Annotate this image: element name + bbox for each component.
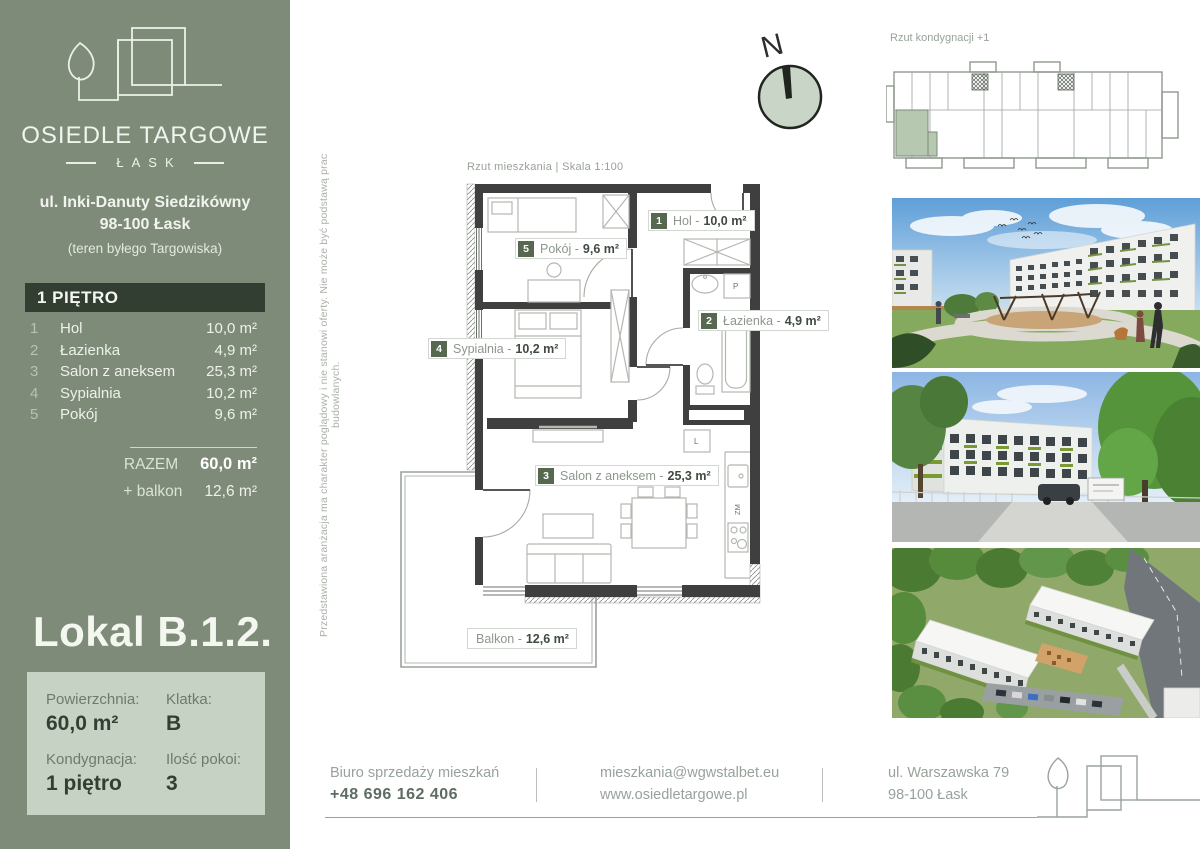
label-balkon: Balkon -12,6 m² [467,628,577,649]
room-label-text: Hol - [673,214,699,228]
room-name: Salon z aneksem [60,361,206,383]
info-staircase-label: Klatka: [166,691,265,708]
room-label-text: Salon z aneksem - [560,469,664,483]
room-no: 5 [30,404,60,426]
kitchen-sink [728,465,748,487]
footer-address-line2: 98-100 Łask [888,784,1009,806]
info-area-value: 60,0 m² [46,712,166,736]
neighbor-building [1164,688,1200,718]
label-salon: 3 Salon z aneksem -25,3 m² [535,465,719,486]
photo-courtyard-render [892,198,1200,368]
room-name: Hol [60,318,206,340]
room-label-area: 12,6 m² [526,632,569,646]
dining-table [632,498,686,548]
footer-address: ul. Warszawska 79 98-100 Łask [888,762,1009,806]
entrance-sign [1088,478,1124,500]
floor-header: 1 PIĘTRO [25,283,265,312]
chair [665,487,680,497]
room-label-area: 10,2 m² [515,342,558,356]
info-area-label: Powierzchnia: [46,691,166,708]
room-number-badge: 5 [518,241,534,257]
label-hol: 1 Hol -10,0 m² [648,210,755,231]
info-area: Powierzchnia: 60,0 m² [46,691,166,736]
footer-separator [822,768,823,802]
staircase-core [972,74,988,90]
room-label-text: Sypialnia - [453,342,511,356]
chair [638,487,653,497]
sofa [527,544,611,583]
chair [687,524,697,538]
overview-title: Rzut kondygnacji +1 [890,32,989,44]
total-divider [130,447,257,448]
room-no: 2 [30,340,60,362]
insulation-bottom [525,597,760,603]
room-table: 1 Hol 10,0 m² 2 Łazienka 4,9 m² 3 Salon … [30,318,257,426]
footer-phone: +48 696 162 406 [330,784,499,806]
coffee-table [543,514,593,538]
room-no: 4 [30,383,60,405]
info-floor: Kondygnacja: 1 piętro [46,751,166,796]
room-label-area: 4,9 m² [785,314,821,328]
tv-stand [533,430,603,442]
dash-left [66,162,96,164]
info-staircase-value: B [166,712,265,736]
room-label-text: Pokój - [540,242,579,256]
shaft [689,410,744,420]
unit-title: Lokal B.1.2. [33,608,272,656]
desk [528,280,580,302]
room-number-badge: 4 [431,341,447,357]
room-area: 10,2 m² [206,383,257,405]
balcony-label: + balkon [123,483,182,501]
room-area: 9,6 m² [214,404,257,426]
room-number-badge: 1 [651,213,667,229]
room-name: Łazienka [60,340,214,362]
label-pokoj: 5 Pokój -9,6 m² [515,238,627,259]
compass-icon: N [752,22,828,134]
chair [621,524,631,538]
room-number-badge: 3 [538,468,554,484]
toilet [697,364,713,384]
room-area: 4,9 m² [214,340,257,362]
info-staircase: Klatka: B [166,691,265,736]
chair [621,504,631,518]
photo-street-render [892,372,1200,542]
total-value: 60,0 m² [200,455,257,474]
room-no: 1 [30,318,60,340]
insulation-left [467,184,475,470]
brand-subtitle-row: ŁASK [0,155,290,170]
room-name: Sypialnia [60,383,206,405]
sink-unit-label: ZM [733,504,742,515]
info-rooms-label: Ilość pokoi: [166,751,265,768]
address-line1: ul. Inki-Danuty Siedzikówny [0,192,290,214]
photo-aerial-render [892,548,1200,718]
pillow [519,313,546,329]
table-row: 5 Pokój 9,6 m² [30,404,257,426]
logo-leaf [69,43,94,80]
info-rooms-value: 3 [166,772,265,796]
address-line3: (teren byłego Targowiska) [0,238,290,260]
highlighted-unit [896,110,928,156]
room-name: Pokój [60,404,214,426]
table-row: 1 Hol 10,0 m² [30,318,257,340]
total-row: RAZEM 60,0 m² [30,455,257,474]
fridge-label: L [694,437,699,446]
footer-contact: mieszkania@wgwstalbet.eu www.osiedletarg… [600,762,779,806]
table-row: 3 Salon z aneksem 25,3 m² [30,361,257,383]
room-no: 3 [30,361,60,383]
brand-subtitle: ŁASK [108,155,181,170]
room-label-area: 25,3 m² [668,469,711,483]
info-floor-value: 1 piętro [46,772,166,796]
footer-address-line1: ul. Warszawska 79 [888,762,1009,784]
room-number-badge: 2 [701,313,717,329]
info-floor-label: Kondygnacja: [46,751,166,768]
address-line2: 98-100 Łask [0,214,290,236]
logo-leaf [1048,758,1068,788]
dash-right [194,162,224,164]
table-row: 2 Łazienka 4,9 m² [30,340,257,362]
label-sypialnia: 4 Sypialnia -10,2 m² [428,338,566,359]
footer-logo-icon [1032,746,1200,820]
total-label: RAZEM [124,456,178,474]
footer-separator [536,768,537,802]
balcony-value: 12,6 m² [204,483,257,501]
footer-office: Biuro sprzedaży mieszkań +48 696 162 406 [330,762,499,806]
footer-website: www.osiedletargowe.pl [600,784,779,806]
label-lazienka: 2 Łazienka -4,9 m² [698,310,829,331]
compass-n: N [758,28,787,65]
staircase-core [1058,74,1074,90]
pillow [550,313,577,329]
room-area: 25,3 m² [206,361,257,383]
sidebar: OSIEDLE TARGOWE ŁASK ul. Inki-Danuty Sie… [0,0,290,849]
plan-disclaimer: Przedstawiona aranżacja ma charakter pog… [318,135,333,655]
building-overview-plan [886,52,1186,180]
room-label-area: 10,0 m² [703,214,746,228]
footer-divider-line [325,817,1037,818]
room-area: 10,0 m² [206,318,257,340]
room-label-text: Balkon - [476,632,522,646]
unit-info-box: Powierzchnia: 60,0 m² Klatka: B Kondygna… [27,672,265,815]
footer-office-label: Biuro sprzedaży mieszkań [330,762,499,784]
washer-label: P [733,282,738,291]
chair [687,504,697,518]
brand-logo-icon [55,15,245,125]
footer-email: mieszkania@wgwstalbet.eu [600,762,779,784]
project-address: ul. Inki-Danuty Siedzikówny 98-100 Łask … [0,192,290,260]
table-row: 4 Sypialnia 10,2 m² [30,383,257,405]
chair [547,263,561,277]
balcony-row: + balkon 12,6 m² [30,483,257,501]
room-label-text: Łazienka - [723,314,781,328]
brochure-page: OSIEDLE TARGOWE ŁASK ul. Inki-Danuty Sie… [0,0,1200,849]
pillow [492,202,512,214]
info-rooms: Ilość pokoi: 3 [166,751,265,796]
brand-name: OSIEDLE TARGOWE [0,122,290,150]
room-label-area: 9,6 m² [583,242,619,256]
